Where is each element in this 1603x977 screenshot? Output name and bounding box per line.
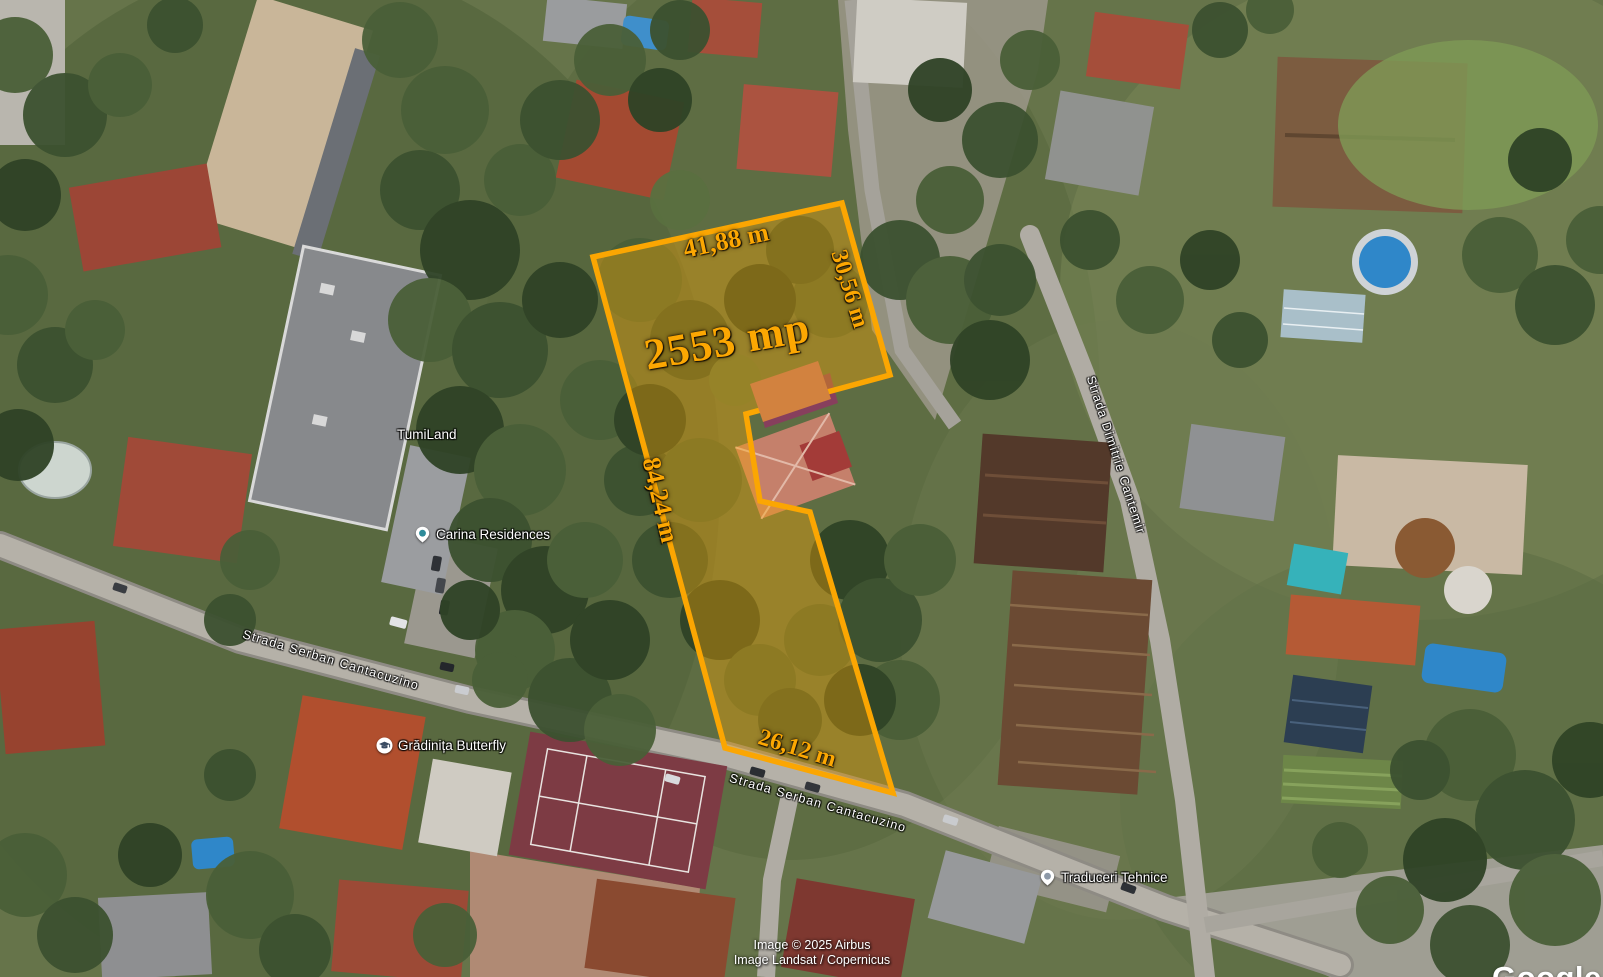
map-canvas[interactable]: 41,88 m 30,56 m 2553 mp 84,24 m 26,12 m … xyxy=(0,0,1603,977)
parcel-overlay xyxy=(0,0,1603,977)
attribution-line-2: Image Landsat / Copernicus xyxy=(734,953,890,968)
map-pin-icon xyxy=(1039,869,1056,886)
google-earth-logo: Google Earth xyxy=(1492,960,1603,977)
poi-name: Traduceri Tehnice xyxy=(1061,870,1168,885)
poi-label-traduceri-tehnice[interactable]: Traduceri Tehnice xyxy=(1039,869,1168,886)
imagery-attribution: Image © 2025 Airbus Image Landsat / Cope… xyxy=(734,938,890,968)
poi-label-tumiland[interactable]: TumiLand xyxy=(397,427,457,442)
poi-label-gradinita-butterfly[interactable]: Grădinița Butterfly xyxy=(376,737,506,754)
poi-name: Grădinița Butterfly xyxy=(398,738,506,753)
map-pin-icon xyxy=(414,526,431,543)
poi-label-carina-residences[interactable]: Carina Residences xyxy=(414,526,550,543)
attribution-line-1: Image © 2025 Airbus xyxy=(734,938,890,953)
poi-name: Carina Residences xyxy=(436,527,550,542)
school-icon xyxy=(376,737,393,754)
poi-name: TumiLand xyxy=(397,427,457,442)
